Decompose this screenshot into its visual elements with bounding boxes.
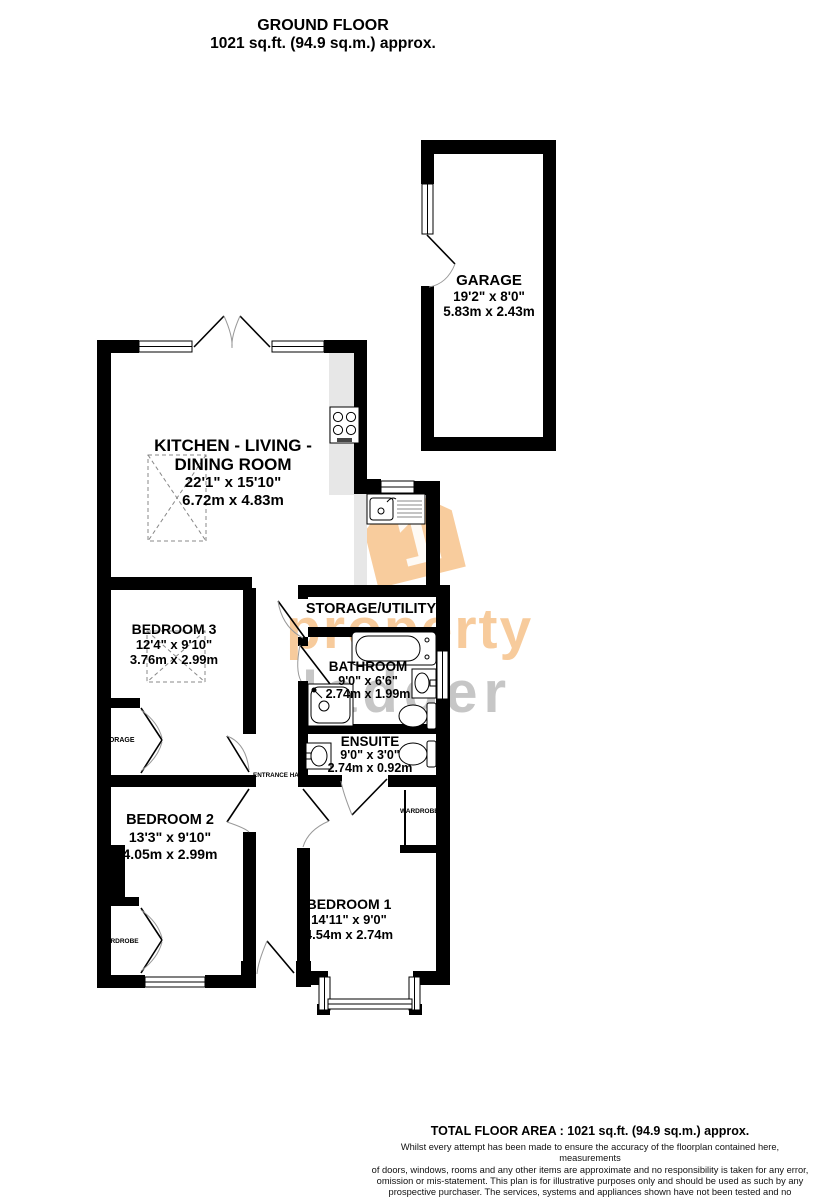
room-label-bedroom1: BEDROOM 1 14'11" x 9'0" 4.54m x 2.74m [305,896,393,942]
window [381,481,414,493]
room-label-ensuite: ENSUITE 9'0" x 3'0" 2.74m x 0.92m [328,735,413,775]
window [272,341,324,352]
room-dim-metric: 3.76m x 2.99m [130,652,218,667]
room-dim-imperial: 12'4" x 9'10" [130,637,218,652]
room-name: BEDROOM 3 [130,621,218,637]
footer: TOTAL FLOOR AREA : 1021 sq.ft. (94.9 sq.… [370,1124,810,1200]
sink-symbol [367,494,425,524]
room-label-kitchen: KITCHEN - LIVING - DINING ROOM 22'1" x 1… [154,436,312,509]
room-label-storage-utility: STORAGE/UTILITY [306,601,436,617]
room-name: GARAGE [443,272,535,289]
bay-window [319,977,420,1010]
room-dim-imperial: 9'0" x 6'6" [326,675,411,689]
total-floor-area: TOTAL FLOOR AREA : 1021 sq.ft. (94.9 sq.… [370,1124,810,1138]
disclaimer-line: omission or mis-statement. This plan is … [370,1176,810,1187]
room-dim-metric: 5.83m x 2.43m [443,304,535,319]
room-name: BEDROOM 1 [305,896,393,912]
room-dim-imperial: 22'1" x 15'10" [154,474,312,492]
label-entrance-hall: ENTRANCE HALL [253,772,307,779]
floorplan-page: GROUND FLOOR 1021 sq.ft. (94.9 sq.m.) ap… [0,0,824,1200]
room-dim-metric: 2.74m x 1.99m [326,688,411,702]
room-dim-imperial: 13'3" x 9'10" [123,829,218,846]
room-name: BEDROOM 2 [123,812,218,829]
garage-window [422,184,433,234]
label-storage: STORAGE [100,737,135,744]
bathroom-window [437,651,448,699]
room-dim-imperial: 19'2" x 8'0" [443,289,535,304]
floorplan-drawing: 1 property ladder [0,0,824,1200]
room-name: ENSUITE [328,735,413,749]
room-dim-metric: 2.74m x 0.92m [328,762,413,775]
room-label-garage: GARAGE 19'2" x 8'0" 5.83m x 2.43m [443,272,535,319]
room-label-bedroom2: BEDROOM 2 13'3" x 9'10" 4.05m x 2.99m [123,812,218,862]
disclaimer-line: of doors, windows, rooms and any other i… [370,1165,810,1176]
room-dim-metric: 6.72m x 4.83m [154,492,312,510]
window [139,341,192,352]
room-label-bedroom3: BEDROOM 3 12'4" x 9'10" 3.76m x 2.99m [130,621,218,667]
room-name: BATHROOM [326,660,411,675]
bathroom-toilet-symbol [399,703,436,729]
room-dim-metric: 4.05m x 2.99m [123,846,218,863]
room-dim-imperial: 14'11" x 9'0" [305,912,393,927]
disclaimer-line: Whilst every attempt has been made to en… [370,1142,810,1165]
hob-symbol [330,407,359,443]
room-dim-metric: 4.54m x 2.74m [305,927,393,942]
room-name: DINING ROOM [154,455,312,474]
bathroom-basin-symbol [412,669,436,698]
bedroom2-window [145,977,205,987]
room-name: STORAGE/UTILITY [306,601,436,617]
room-name: KITCHEN - LIVING - [154,436,312,455]
label-wardrobe-bedroom1: WARDROBE [400,808,436,815]
disclaimer-line: prospective purchaser. The services, sys… [370,1187,810,1200]
room-label-bathroom: BATHROOM 9'0" x 6'6" 2.74m x 1.99m [326,660,411,702]
label-wardrobe-bedroom2: WARDROBE [100,938,139,945]
